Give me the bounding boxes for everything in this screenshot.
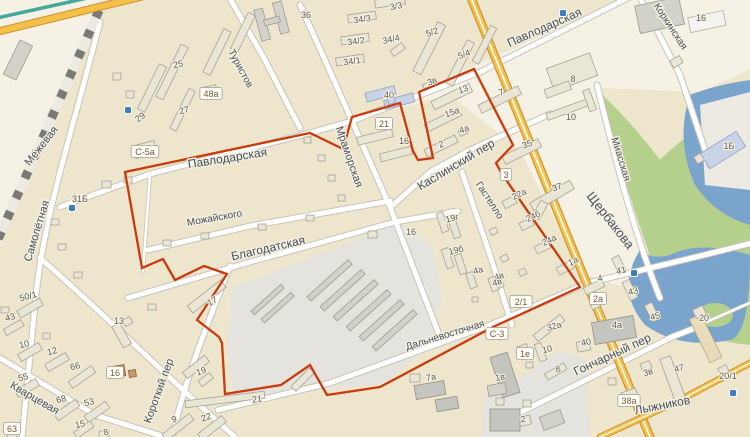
building-label: 16 bbox=[696, 13, 706, 23]
building-label: 7а bbox=[425, 371, 437, 383]
building-label: 10 bbox=[566, 112, 576, 122]
building-label: 63 bbox=[7, 424, 17, 434]
building-label: 16 bbox=[406, 227, 416, 237]
building-label: 4а bbox=[612, 320, 622, 330]
bus-stop-icon[interactable] bbox=[69, 205, 76, 212]
building-label: 36 bbox=[301, 10, 311, 20]
building-label: 1Б bbox=[724, 141, 735, 151]
building-label: 16 bbox=[110, 368, 120, 378]
building-label: С-3 bbox=[490, 329, 505, 339]
building-label: С-5а bbox=[135, 147, 155, 157]
bus-stop-icon[interactable] bbox=[631, 270, 638, 277]
building-label: 13 bbox=[114, 316, 124, 326]
building-label: 20 bbox=[699, 313, 709, 323]
bus-stop-icon[interactable] bbox=[560, 10, 567, 17]
building-label: 21 bbox=[251, 394, 262, 405]
building-label: 20/1 bbox=[719, 371, 737, 381]
map-canvas[interactable]: 2548а2729С-5а31Б363/334/334/234/434/15/2… bbox=[0, 0, 750, 437]
building-label: 21 bbox=[379, 119, 389, 129]
building-label: 3 bbox=[503, 170, 508, 180]
bus-stop-icon[interactable] bbox=[730, 390, 737, 397]
building-label: 40 bbox=[384, 90, 394, 100]
building-label: 48а bbox=[203, 89, 218, 99]
bus-stop-icon[interactable] bbox=[125, 107, 132, 114]
building-label: 2а bbox=[593, 294, 603, 304]
building-label: 2/1 bbox=[515, 297, 528, 307]
building-label: 1е bbox=[520, 349, 530, 359]
map-viewport[interactable]: 2548а2729С-5а31Б363/334/334/234/434/15/2… bbox=[0, 0, 750, 437]
building-label: 8 bbox=[570, 74, 575, 84]
building-label: 31Б bbox=[72, 194, 88, 204]
building-label: 16 bbox=[399, 136, 409, 146]
building-label: 40 bbox=[580, 336, 592, 348]
